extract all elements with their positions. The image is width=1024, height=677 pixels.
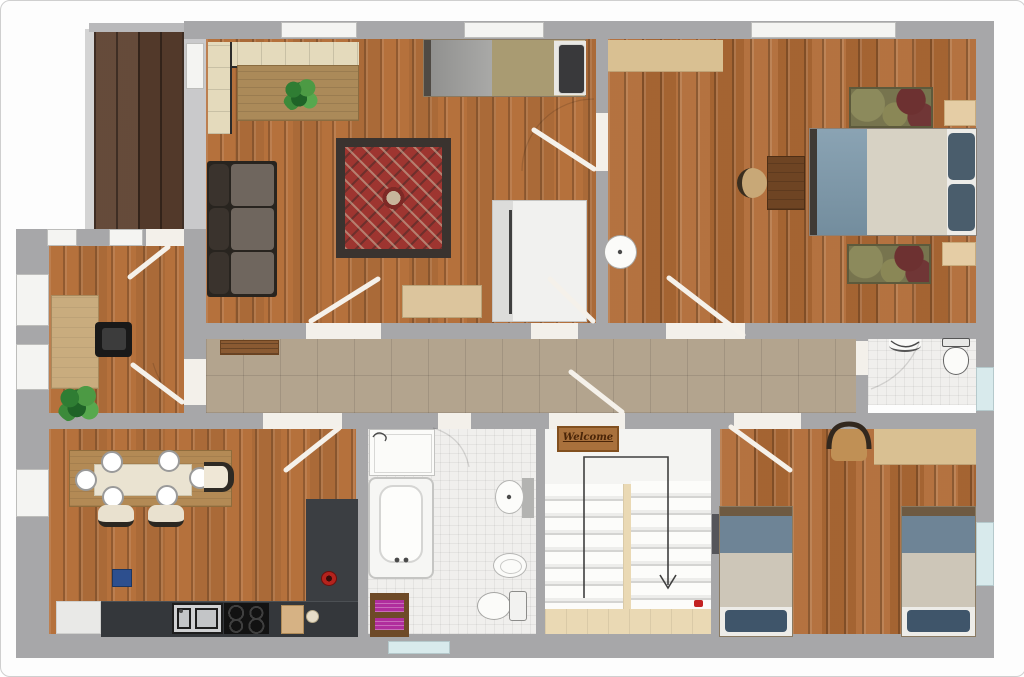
twin-chair-back <box>829 424 869 449</box>
bathtub-faucet-2 <box>404 558 409 563</box>
bathroom-sink-drain <box>507 495 511 499</box>
arc-bathroom-door <box>433 428 469 467</box>
annotations-overlay <box>1 1 1024 676</box>
arc-wc-door <box>871 341 920 389</box>
door-leaf-deck <box>130 247 168 277</box>
door-leaf-stairs <box>571 372 622 412</box>
door-leaf-master <box>669 278 743 335</box>
door-leaf-kitchen <box>286 428 339 470</box>
door-leaf-office <box>133 365 182 402</box>
bathtub-faucet-1 <box>395 558 400 563</box>
door-leaf-twin <box>731 427 790 470</box>
bedroom-sink-drain <box>618 250 622 254</box>
kitchen-faucet <box>179 609 183 613</box>
wc-sink-edge <box>891 341 919 347</box>
door-leaf-living-master <box>534 130 594 169</box>
door-leaf-living-b <box>550 279 593 321</box>
stairs-arrow-path <box>584 457 668 598</box>
door-leaf-living-a <box>311 279 378 321</box>
vanity-faucet <box>373 433 386 441</box>
floor-plan: Welcome <box>0 0 1024 677</box>
